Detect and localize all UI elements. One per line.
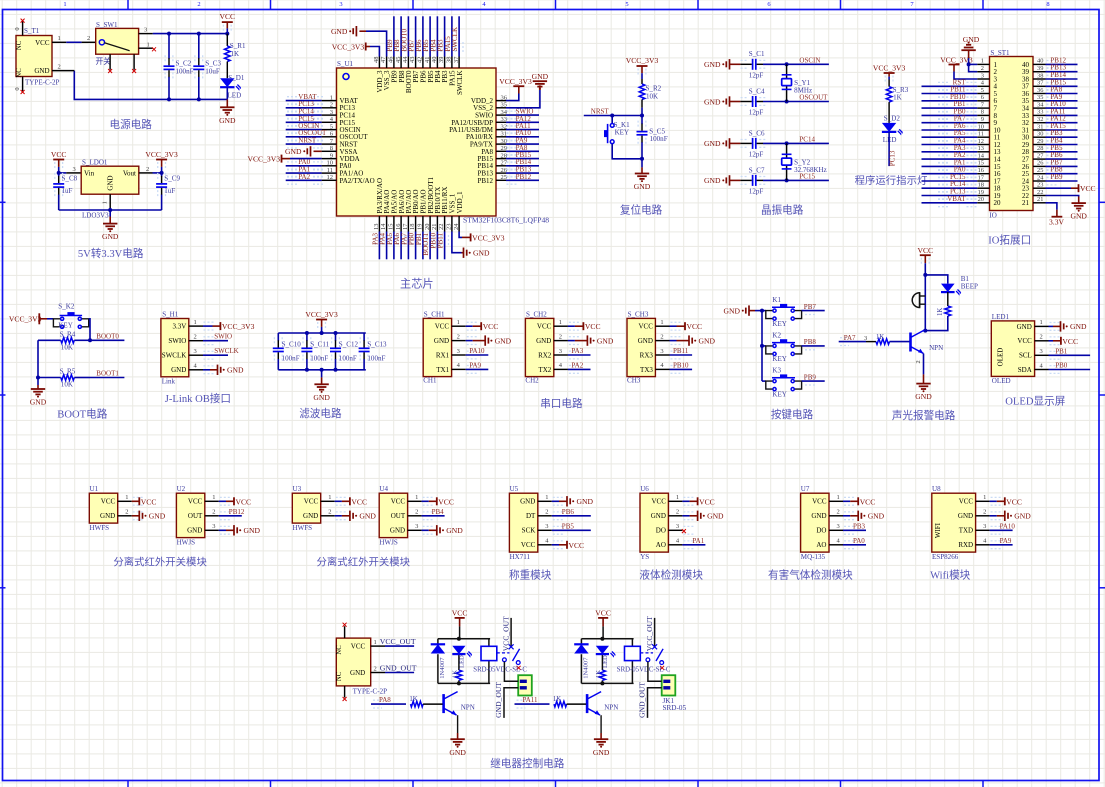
svg-text:TX3: TX3 bbox=[640, 366, 653, 374]
svg-text:PB12: PB12 bbox=[477, 177, 493, 185]
svg-text:21: 21 bbox=[1037, 196, 1043, 203]
svg-text:1: 1 bbox=[983, 494, 986, 501]
svg-text:NPN: NPN bbox=[461, 704, 475, 712]
svg-text:VCC: VCC bbox=[699, 497, 715, 506]
svg-text:3: 3 bbox=[212, 523, 215, 530]
svg-text:声光报警电路: 声光报警电路 bbox=[892, 409, 956, 422]
svg-text:Vin: Vin bbox=[84, 169, 95, 177]
svg-text:Wifi模块: Wifi模块 bbox=[930, 570, 971, 582]
svg-text:NC: NC bbox=[16, 40, 23, 50]
svg-text:GND: GND bbox=[532, 72, 549, 81]
svg-text:1: 1 bbox=[374, 639, 377, 646]
svg-text:S_C13: S_C13 bbox=[367, 340, 387, 348]
svg-text:VCC: VCC bbox=[219, 12, 235, 21]
svg-text:1: 1 bbox=[63, 1, 66, 8]
svg-text:VCC: VCC bbox=[141, 497, 157, 506]
svg-text:23: 23 bbox=[1037, 182, 1043, 189]
svg-text:1: 1 bbox=[58, 35, 61, 42]
svg-text:PB10: PB10 bbox=[673, 361, 689, 369]
svg-text:GND: GND bbox=[958, 512, 973, 520]
svg-text:GND: GND bbox=[495, 336, 512, 345]
svg-text:39: 39 bbox=[1037, 65, 1043, 72]
svg-text:5: 5 bbox=[330, 123, 333, 130]
svg-text:S_D2: S_D2 bbox=[884, 115, 901, 123]
svg-text:8MHz: 8MHz bbox=[794, 87, 812, 95]
svg-text:S_CH1: S_CH1 bbox=[424, 311, 445, 319]
svg-text:GND: GND bbox=[593, 748, 610, 757]
svg-text:VCC: VCC bbox=[35, 39, 50, 47]
svg-text:BEEP: BEEP bbox=[961, 282, 978, 290]
svg-text:8: 8 bbox=[981, 109, 984, 116]
svg-text:VCC_OUT: VCC_OUT bbox=[501, 616, 510, 651]
svg-text:PB6: PB6 bbox=[562, 508, 575, 516]
svg-text:12pF: 12pF bbox=[749, 151, 764, 159]
svg-text:VCC: VCC bbox=[351, 497, 367, 506]
svg-text:45: 45 bbox=[395, 57, 402, 63]
svg-text:OSCOUT: OSCOUT bbox=[799, 94, 828, 102]
svg-text:PC13: PC13 bbox=[889, 150, 897, 166]
svg-text:100nF: 100nF bbox=[310, 354, 328, 362]
svg-text:NPN: NPN bbox=[604, 704, 618, 712]
svg-text:U2: U2 bbox=[177, 485, 186, 493]
svg-text:PA7: PA7 bbox=[844, 334, 856, 342]
svg-text:1K: 1K bbox=[893, 94, 903, 102]
svg-text:22: 22 bbox=[438, 224, 445, 230]
svg-text:K1: K1 bbox=[772, 296, 781, 304]
svg-text:23: 23 bbox=[446, 224, 453, 230]
svg-text:GND: GND bbox=[390, 527, 405, 535]
svg-text:PA9: PA9 bbox=[1000, 537, 1012, 545]
svg-text:BOOT电路: BOOT电路 bbox=[57, 407, 107, 420]
svg-text:1: 1 bbox=[660, 319, 663, 326]
svg-text:NC: NC bbox=[336, 645, 343, 655]
svg-text:AO: AO bbox=[656, 541, 666, 549]
svg-text:1uF: 1uF bbox=[62, 187, 73, 195]
svg-text:3: 3 bbox=[864, 335, 867, 342]
svg-text:PB4: PB4 bbox=[432, 508, 445, 516]
svg-text:1K: 1K bbox=[876, 334, 884, 341]
svg-text:分离式红外开关模块: 分离式红外开关模块 bbox=[317, 556, 411, 569]
svg-text:VCC: VCC bbox=[452, 609, 468, 618]
svg-text:21: 21 bbox=[431, 224, 438, 230]
svg-text:100nF: 100nF bbox=[282, 354, 300, 362]
svg-text:GND: GND bbox=[30, 398, 47, 407]
svg-text:2: 2 bbox=[212, 509, 215, 516]
svg-text:8: 8 bbox=[330, 145, 333, 152]
svg-text:VCC: VCC bbox=[304, 498, 319, 506]
svg-text:19: 19 bbox=[417, 224, 424, 230]
svg-text:30: 30 bbox=[1037, 131, 1043, 138]
svg-text:复位电路: 复位电路 bbox=[620, 203, 663, 216]
svg-text:S_ST1: S_ST1 bbox=[990, 49, 1010, 57]
svg-text:16: 16 bbox=[978, 167, 984, 174]
svg-text:2: 2 bbox=[194, 334, 197, 341]
svg-text:GND: GND bbox=[359, 512, 376, 521]
svg-text:PA11: PA11 bbox=[523, 696, 539, 704]
svg-text:GND: GND bbox=[577, 497, 594, 506]
svg-text:PA1: PA1 bbox=[692, 537, 704, 545]
svg-text:VCC: VCC bbox=[651, 498, 666, 506]
svg-text:10K: 10K bbox=[61, 343, 74, 351]
svg-text:GND_OUT: GND_OUT bbox=[494, 682, 503, 718]
svg-text:GND: GND bbox=[449, 748, 466, 757]
svg-text:3: 3 bbox=[194, 348, 197, 355]
svg-text:10uF: 10uF bbox=[205, 68, 220, 76]
svg-text:10: 10 bbox=[327, 160, 334, 167]
svg-text:1: 1 bbox=[559, 319, 562, 326]
svg-text:PA2/TX/AO: PA2/TX/AO bbox=[340, 177, 375, 185]
svg-text:VCC: VCC bbox=[569, 541, 585, 550]
svg-text:S_R4: S_R4 bbox=[60, 330, 76, 338]
svg-text:S_D1: S_D1 bbox=[228, 74, 245, 82]
svg-text:1: 1 bbox=[101, 201, 108, 204]
svg-text:KEY: KEY bbox=[772, 355, 786, 363]
svg-text:K2: K2 bbox=[772, 332, 781, 340]
svg-text:3.3V: 3.3V bbox=[1049, 218, 1064, 227]
svg-text:OUT: OUT bbox=[188, 512, 203, 520]
svg-text:3: 3 bbox=[339, 1, 342, 8]
svg-text:VCC: VCC bbox=[860, 497, 876, 506]
svg-text:SCL: SCL bbox=[1019, 352, 1032, 360]
svg-text:VCC: VCC bbox=[812, 498, 827, 506]
svg-text:VCC: VCC bbox=[391, 498, 406, 506]
svg-text:24: 24 bbox=[453, 223, 460, 230]
svg-text:S_T1: S_T1 bbox=[24, 27, 40, 35]
svg-text:VCC: VCC bbox=[917, 246, 933, 255]
svg-text:VCC: VCC bbox=[483, 322, 499, 331]
svg-text:TX1: TX1 bbox=[436, 366, 449, 374]
svg-text:GND: GND bbox=[651, 512, 666, 520]
svg-text:GND: GND bbox=[107, 175, 115, 190]
svg-text:13: 13 bbox=[978, 145, 984, 152]
svg-text:1: 1 bbox=[457, 319, 460, 326]
svg-text:VCC_3V3: VCC_3V3 bbox=[248, 155, 281, 164]
svg-text:2: 2 bbox=[374, 665, 377, 672]
svg-text:12: 12 bbox=[327, 174, 334, 181]
svg-text:GND: GND bbox=[704, 60, 721, 69]
svg-text:VCC_3V3: VCC_3V3 bbox=[499, 77, 532, 86]
svg-text:MQ-135: MQ-135 bbox=[801, 553, 826, 561]
svg-text:U5: U5 bbox=[510, 485, 519, 493]
svg-text:液体检测模块: 液体检测模块 bbox=[639, 569, 703, 582]
svg-text:WIFI: WIFI bbox=[934, 522, 942, 538]
svg-text:U7: U7 bbox=[801, 485, 810, 493]
svg-text:Link: Link bbox=[162, 377, 176, 385]
svg-text:26: 26 bbox=[1037, 160, 1043, 167]
svg-text:PA10: PA10 bbox=[1000, 522, 1016, 530]
svg-text:5: 5 bbox=[625, 1, 628, 8]
svg-text:NPN: NPN bbox=[929, 344, 943, 352]
svg-text:SWCLK: SWCLK bbox=[451, 27, 459, 52]
svg-text:HX711: HX711 bbox=[510, 553, 531, 561]
svg-text:44: 44 bbox=[402, 56, 409, 63]
svg-text:LED: LED bbox=[602, 655, 609, 668]
svg-text:S_U1: S_U1 bbox=[337, 60, 354, 68]
svg-text:继电器控制电路: 继电器控制电路 bbox=[490, 757, 565, 770]
svg-text:PA2: PA2 bbox=[298, 173, 310, 181]
svg-text:GND: GND bbox=[34, 67, 49, 75]
svg-text:2: 2 bbox=[660, 333, 663, 340]
svg-text:GND: GND bbox=[303, 512, 318, 520]
svg-text:3: 3 bbox=[1040, 348, 1043, 355]
svg-text:100nF: 100nF bbox=[650, 135, 668, 143]
svg-text:1: 1 bbox=[545, 494, 548, 501]
svg-text:GND: GND bbox=[1014, 512, 1031, 521]
svg-text:GND: GND bbox=[704, 97, 721, 106]
svg-text:S_C8: S_C8 bbox=[62, 175, 78, 183]
svg-text:滤波电路: 滤波电路 bbox=[299, 407, 342, 420]
svg-text:18: 18 bbox=[978, 182, 984, 189]
svg-text:36: 36 bbox=[1037, 87, 1043, 94]
svg-text:NC: NC bbox=[16, 68, 23, 78]
svg-text:BOOT1: BOOT1 bbox=[96, 370, 119, 378]
svg-text:VBAT: VBAT bbox=[947, 195, 966, 203]
svg-text:TYPE-C-2P: TYPE-C-2P bbox=[353, 687, 388, 695]
svg-text:3: 3 bbox=[457, 348, 460, 355]
svg-text:1K: 1K bbox=[553, 696, 561, 703]
svg-text:串口电路: 串口电路 bbox=[540, 397, 583, 410]
svg-text:OUT: OUT bbox=[391, 512, 406, 520]
svg-text:GND_OUT: GND_OUT bbox=[637, 682, 646, 718]
svg-text:GND: GND bbox=[520, 498, 535, 506]
svg-text:40: 40 bbox=[431, 57, 438, 63]
svg-text:GND: GND bbox=[219, 116, 236, 125]
svg-text:S_H1: S_H1 bbox=[162, 311, 179, 319]
svg-text:VCC: VCC bbox=[1080, 184, 1096, 193]
svg-text:VCC: VCC bbox=[521, 541, 536, 549]
svg-text:PB1: PB1 bbox=[1055, 347, 1068, 355]
svg-text:HWFS: HWFS bbox=[90, 524, 110, 532]
svg-text:SWCLK: SWCLK bbox=[456, 71, 464, 96]
svg-text:1K: 1K bbox=[451, 670, 458, 678]
svg-text:38: 38 bbox=[1037, 72, 1043, 79]
svg-text:PB9: PB9 bbox=[1050, 173, 1063, 181]
svg-text:37: 37 bbox=[1037, 80, 1044, 87]
svg-text:SRD-05VDC-SL-C: SRD-05VDC-SL-C bbox=[617, 667, 671, 674]
svg-text:VCC: VCC bbox=[1017, 337, 1032, 345]
svg-text:PB11: PB11 bbox=[437, 233, 445, 249]
svg-text:GND: GND bbox=[704, 176, 721, 185]
svg-text:TYPE-C-2P: TYPE-C-2P bbox=[25, 78, 60, 86]
svg-text:PB12: PB12 bbox=[229, 508, 245, 516]
svg-text:S_C9: S_C9 bbox=[164, 175, 180, 183]
svg-text:3: 3 bbox=[837, 523, 840, 530]
svg-text:BOOT0: BOOT0 bbox=[96, 332, 119, 340]
svg-text:VCC_3V3: VCC_3V3 bbox=[145, 150, 178, 159]
svg-text:NC: NC bbox=[336, 671, 343, 681]
svg-text:48: 48 bbox=[373, 57, 380, 63]
svg-text:5: 5 bbox=[981, 87, 984, 94]
svg-text:VCC: VCC bbox=[1006, 497, 1022, 506]
svg-text:2: 2 bbox=[330, 102, 333, 109]
svg-text:S_C1: S_C1 bbox=[749, 50, 765, 58]
svg-text:GND: GND bbox=[704, 139, 721, 148]
svg-text:YS: YS bbox=[640, 553, 649, 561]
svg-text:VDD_1: VDD_1 bbox=[456, 191, 464, 214]
svg-text:SWIO: SWIO bbox=[168, 337, 186, 345]
svg-text:U8: U8 bbox=[932, 485, 941, 493]
svg-text:24: 24 bbox=[1037, 174, 1044, 181]
svg-text:STM32F103C8T6_LQFP48: STM32F103C8T6_LQFP48 bbox=[463, 215, 549, 224]
svg-text:GND: GND bbox=[724, 306, 741, 315]
svg-text:VCC: VCC bbox=[537, 323, 552, 331]
svg-text:GND: GND bbox=[331, 27, 348, 36]
svg-text:27: 27 bbox=[1037, 152, 1044, 159]
svg-text:S_CH2: S_CH2 bbox=[526, 311, 547, 319]
svg-text:VCC_3V3: VCC_3V3 bbox=[305, 310, 338, 319]
svg-text:PB11: PB11 bbox=[673, 347, 689, 355]
svg-text:GND: GND bbox=[227, 366, 244, 375]
svg-text:1: 1 bbox=[212, 494, 215, 501]
svg-text:GND: GND bbox=[187, 527, 202, 535]
svg-text:3: 3 bbox=[660, 348, 663, 355]
svg-text:29: 29 bbox=[1037, 138, 1043, 145]
svg-text:GND: GND bbox=[707, 512, 724, 521]
svg-text:15: 15 bbox=[388, 224, 395, 230]
svg-text:40: 40 bbox=[1037, 58, 1043, 65]
svg-text:1N4007: 1N4007 bbox=[439, 657, 446, 679]
svg-text:42: 42 bbox=[417, 57, 424, 63]
svg-text:PB3: PB3 bbox=[853, 522, 866, 530]
svg-text:GND: GND bbox=[149, 512, 166, 521]
svg-text:GND: GND bbox=[868, 512, 885, 521]
svg-text:1: 1 bbox=[415, 494, 418, 501]
svg-text:DO: DO bbox=[656, 527, 666, 535]
svg-text:1: 1 bbox=[125, 494, 128, 501]
svg-text:32: 32 bbox=[1037, 116, 1043, 123]
svg-text:1: 1 bbox=[328, 494, 331, 501]
svg-text:13: 13 bbox=[373, 224, 380, 230]
svg-text:OLED: OLED bbox=[992, 377, 1011, 385]
svg-text:2: 2 bbox=[457, 333, 460, 340]
svg-text:34: 34 bbox=[1037, 101, 1044, 108]
svg-text:CH1: CH1 bbox=[423, 377, 437, 385]
svg-text:S_SW1: S_SW1 bbox=[96, 21, 118, 29]
svg-text:VCC: VCC bbox=[188, 498, 203, 506]
svg-text:KEY: KEY bbox=[772, 320, 786, 328]
svg-text:VCC: VCC bbox=[1062, 337, 1078, 346]
svg-text:VCC_3V3: VCC_3V3 bbox=[222, 322, 255, 331]
svg-text:3: 3 bbox=[983, 523, 986, 530]
svg-text:PB12: PB12 bbox=[516, 173, 532, 181]
svg-text:15: 15 bbox=[978, 160, 984, 167]
svg-text:GND: GND bbox=[171, 366, 186, 374]
svg-text:S_C2: S_C2 bbox=[176, 59, 192, 67]
svg-text:GND: GND bbox=[473, 249, 490, 258]
svg-text:GND: GND bbox=[100, 512, 115, 520]
svg-text:CH2: CH2 bbox=[525, 377, 539, 385]
svg-text:1K: 1K bbox=[595, 670, 602, 678]
svg-text:S_C6: S_C6 bbox=[749, 129, 765, 137]
svg-text:NRST: NRST bbox=[591, 107, 610, 115]
svg-text:46: 46 bbox=[388, 57, 395, 63]
svg-text:GND: GND bbox=[536, 337, 551, 345]
svg-text:LED1: LED1 bbox=[992, 313, 1010, 321]
svg-text:100nF: 100nF bbox=[367, 354, 385, 362]
svg-text:S_C10: S_C10 bbox=[282, 340, 302, 348]
svg-text:PC14: PC14 bbox=[799, 136, 815, 144]
svg-text:20: 20 bbox=[978, 196, 984, 203]
svg-text:程序运行指示灯: 程序运行指示灯 bbox=[855, 174, 928, 187]
svg-text:14: 14 bbox=[380, 223, 387, 230]
svg-text:S_CH3: S_CH3 bbox=[628, 311, 649, 319]
svg-text:22: 22 bbox=[1037, 189, 1043, 196]
svg-text:GND: GND bbox=[811, 512, 826, 520]
svg-text:称重模块: 称重模块 bbox=[509, 569, 552, 582]
svg-text:3: 3 bbox=[73, 166, 76, 173]
svg-text:20: 20 bbox=[424, 224, 431, 230]
svg-text:2: 2 bbox=[328, 509, 331, 516]
svg-text:1: 1 bbox=[981, 58, 984, 65]
svg-text:LDO3V3: LDO3V3 bbox=[82, 211, 109, 219]
svg-text:VCC: VCC bbox=[959, 498, 974, 506]
svg-text:11: 11 bbox=[327, 167, 333, 174]
svg-text:SWIO: SWIO bbox=[214, 333, 232, 341]
svg-text:3: 3 bbox=[981, 72, 984, 79]
svg-text:1N4007: 1N4007 bbox=[582, 657, 589, 679]
svg-text:TXD: TXD bbox=[959, 527, 973, 535]
svg-text:1uF: 1uF bbox=[164, 187, 175, 195]
svg-text:3: 3 bbox=[676, 523, 679, 530]
svg-text:2: 2 bbox=[545, 509, 548, 516]
svg-text:2: 2 bbox=[837, 509, 840, 516]
svg-text:PA9: PA9 bbox=[469, 361, 481, 369]
svg-text:VCC_3V3: VCC_3V3 bbox=[9, 315, 42, 324]
svg-text:PA0: PA0 bbox=[853, 537, 865, 545]
svg-text:GND: GND bbox=[313, 393, 330, 402]
svg-text:U6: U6 bbox=[640, 485, 649, 493]
svg-text:31: 31 bbox=[1037, 123, 1043, 130]
svg-text:VCC: VCC bbox=[585, 322, 601, 331]
svg-text:2: 2 bbox=[146, 166, 149, 173]
svg-text:GND: GND bbox=[699, 336, 716, 345]
svg-text:VCC_OUT: VCC_OUT bbox=[645, 616, 654, 651]
svg-text:S_LDO1: S_LDO1 bbox=[82, 159, 108, 167]
svg-text:K3: K3 bbox=[772, 367, 781, 375]
svg-text:37: 37 bbox=[453, 56, 460, 63]
svg-text:OLED显示屏: OLED显示屏 bbox=[1005, 396, 1065, 408]
svg-text:主芯片: 主芯片 bbox=[400, 277, 434, 291]
svg-text:TX2: TX2 bbox=[538, 366, 551, 374]
svg-text:28: 28 bbox=[1037, 145, 1043, 152]
svg-text:41: 41 bbox=[424, 57, 431, 63]
svg-text:47: 47 bbox=[380, 56, 387, 63]
svg-text:SRD-05VDC-SL-C: SRD-05VDC-SL-C bbox=[473, 667, 527, 674]
svg-text:HWJS: HWJS bbox=[379, 539, 397, 547]
svg-text:2: 2 bbox=[676, 509, 679, 516]
svg-text:PA10: PA10 bbox=[469, 347, 485, 355]
svg-text:GND: GND bbox=[446, 526, 463, 535]
svg-text:S_K2: S_K2 bbox=[58, 303, 75, 311]
svg-text:PB9: PB9 bbox=[804, 373, 817, 381]
svg-text:OSCIN: OSCIN bbox=[799, 56, 820, 64]
svg-text:3: 3 bbox=[415, 523, 418, 530]
svg-text:25: 25 bbox=[1037, 167, 1043, 174]
svg-text:GND: GND bbox=[1070, 212, 1087, 221]
svg-text:S_C12: S_C12 bbox=[339, 340, 359, 348]
svg-text:GND: GND bbox=[434, 337, 449, 345]
svg-text:KEY: KEY bbox=[58, 321, 72, 329]
svg-text:VCC_3V3: VCC_3V3 bbox=[940, 56, 973, 65]
svg-text:2: 2 bbox=[197, 1, 200, 8]
svg-text:KEY: KEY bbox=[772, 390, 786, 398]
svg-text:VCC: VCC bbox=[51, 150, 67, 159]
svg-text:1: 1 bbox=[676, 494, 679, 501]
svg-text:ESP8266: ESP8266 bbox=[932, 553, 959, 561]
svg-text:DT: DT bbox=[526, 512, 536, 520]
svg-text:3: 3 bbox=[330, 109, 333, 116]
svg-text:GND: GND bbox=[244, 526, 261, 535]
